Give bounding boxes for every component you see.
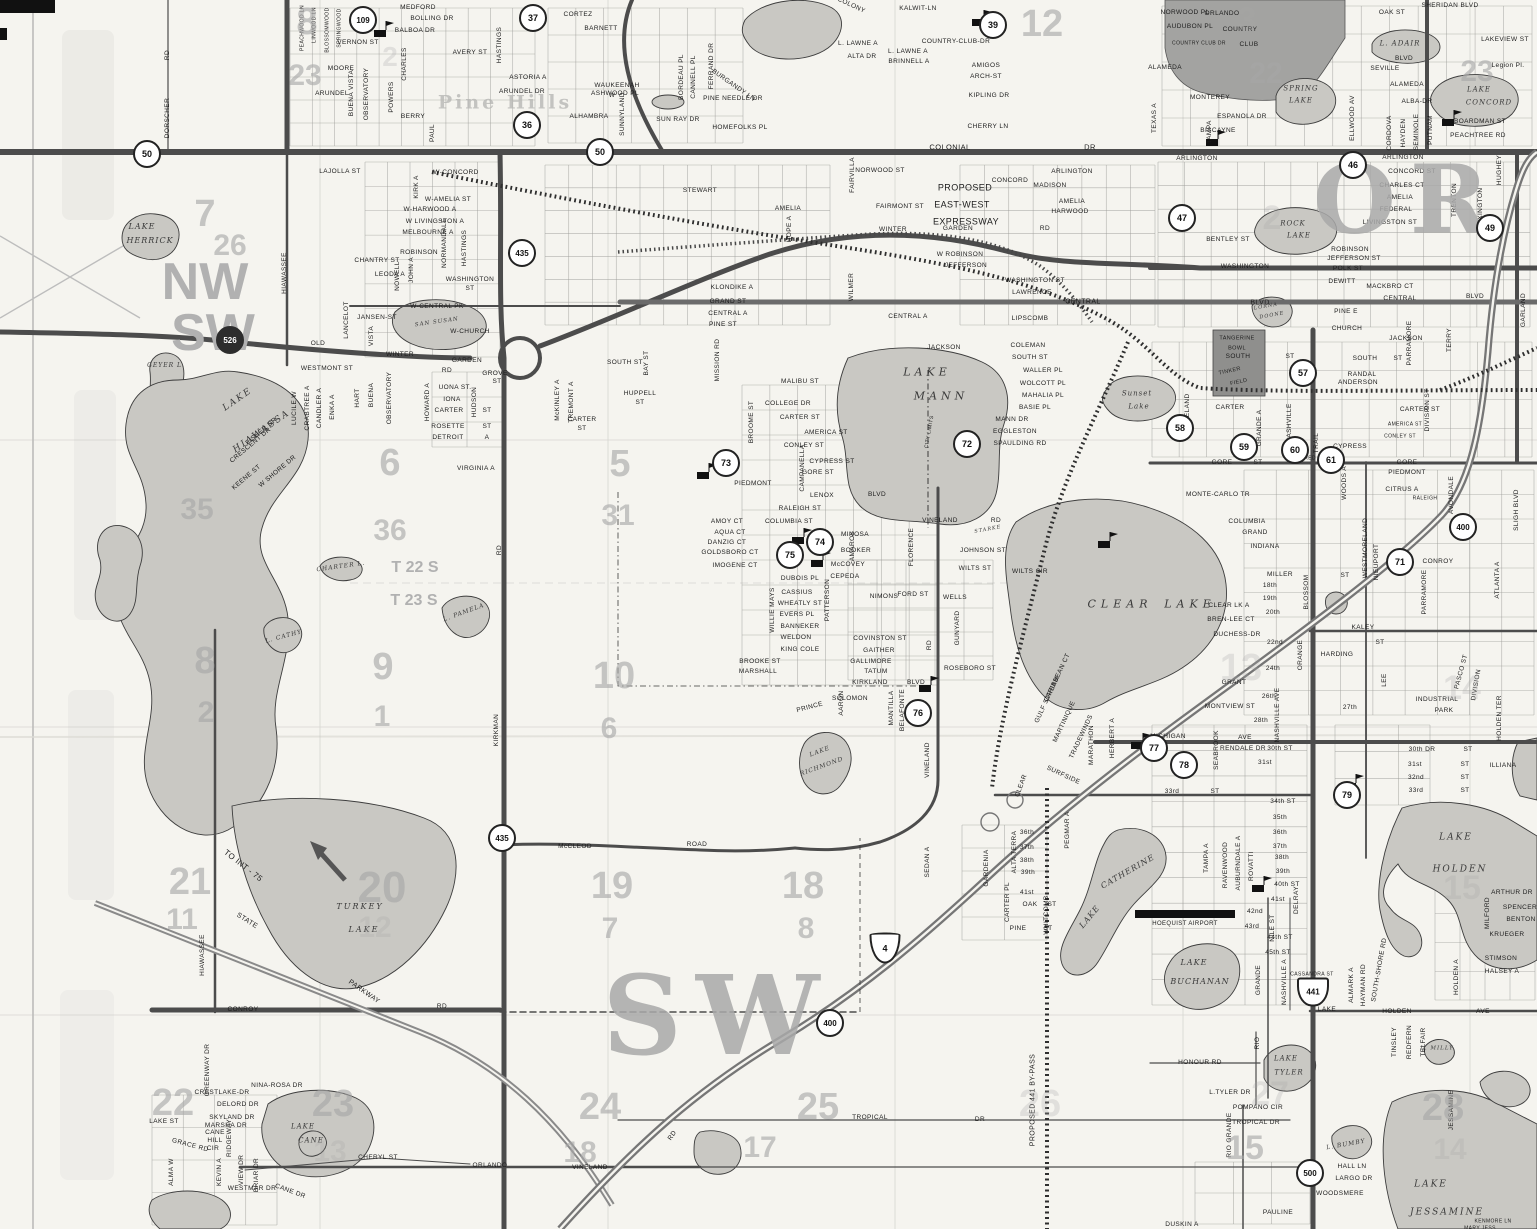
street-label: BENTLEY ST — [1206, 237, 1250, 244]
lake-label: Sunset — [1122, 391, 1152, 398]
street-label: WOLCOTT PL — [1020, 381, 1066, 388]
street-label: TATUM — [864, 669, 887, 676]
street-label: KALEY — [1352, 625, 1375, 632]
us-route-shield: 441 — [1297, 978, 1329, 1007]
state-route-shield: 435 — [488, 824, 516, 852]
street-label: A — [485, 435, 490, 442]
street-label: KING COLE — [781, 647, 820, 654]
street-label: LAWRENCE — [1012, 290, 1052, 297]
street-label: OBSERVATORY — [387, 372, 394, 425]
street-label: AVE — [1476, 1009, 1490, 1016]
street-label: EVERS PL — [780, 612, 815, 619]
street-label: DELRAY — [1294, 886, 1301, 914]
street-label: BERRY — [401, 114, 425, 121]
street-label: WASHINGTON — [446, 277, 494, 284]
street-label: ARCH-ST — [970, 74, 1002, 81]
street-label: JEFFERSON — [945, 263, 987, 270]
street-label: ST — [1375, 640, 1384, 647]
section-number: 12 — [358, 913, 391, 943]
street-label: MILLER — [1267, 572, 1293, 579]
street-label: PUTNAM — [1428, 115, 1435, 145]
street-label: KEENE ST — [231, 464, 262, 492]
street-label: WESTMAR DR — [228, 1186, 276, 1193]
street-label: BANNEKER — [781, 624, 820, 631]
section-number: 22 — [1249, 59, 1282, 89]
street-label: CANE DR — [274, 1183, 306, 1200]
street-label: ALMA W — [169, 1158, 176, 1186]
street-label: GORE — [1212, 460, 1233, 467]
street-label: GARLAND — [1521, 293, 1528, 327]
state-route-shield: 75 — [776, 541, 804, 569]
street-label: KRUEGER — [1490, 932, 1525, 939]
street-label: RD — [437, 1004, 447, 1011]
street-label: LAKEVIEW ST — [1481, 37, 1529, 44]
street-label: WESTMORELAND — [1363, 518, 1370, 578]
lake-label: SPRING — [1283, 86, 1318, 93]
state-route-shield: 109 — [349, 6, 377, 34]
street-label: BASIE PL — [1019, 405, 1051, 412]
lake-label: LAKE — [1289, 98, 1313, 105]
street-label: RALEIGH ST — [779, 506, 822, 513]
street-label: ARTHUR DR — [1491, 890, 1533, 897]
street-label: BROOKE ST — [739, 659, 781, 666]
street-label: COUNTRY CLUB DR — [1172, 42, 1226, 47]
street-label: STIMSON — [1485, 956, 1517, 963]
street-label: BLVD — [868, 492, 886, 499]
street-label: 37th — [1020, 845, 1034, 852]
street-label: DORSCHER — [165, 98, 172, 138]
street-label: SEVILLE — [1370, 66, 1399, 73]
street-label: MILFORD — [1485, 897, 1492, 929]
street-label: PARK — [1435, 708, 1454, 715]
street-label: WILTS CIR — [1012, 569, 1048, 576]
street-label: CANE — [205, 1130, 225, 1137]
lake-label: CONCORD — [1466, 100, 1512, 107]
street-label: AVE — [1238, 735, 1252, 742]
street-label: AQUA CT — [714, 530, 745, 537]
section-number: 25 — [797, 1088, 839, 1126]
street-label: REDFERN — [1407, 1025, 1414, 1059]
section-number: 14 — [1443, 671, 1481, 705]
street-label: W SHORE DR — [258, 455, 298, 490]
street-label: PARRAMORE — [1422, 569, 1429, 614]
lake-label: CHARTER L. — [316, 561, 366, 574]
street-label: W-CENTRAL PK — [410, 304, 464, 311]
street-label: VINELAND — [922, 518, 958, 525]
street-label: PIEDMONT — [734, 481, 772, 488]
street-label: PATTERSON — [825, 579, 832, 621]
state-route-shield: 79 — [1333, 781, 1361, 809]
section-number: 9 — [372, 648, 393, 686]
lake-label: HERRICK — [126, 237, 173, 245]
street-label: PRINCE — [796, 701, 824, 714]
street-label: PARRAMORE — [1407, 320, 1414, 365]
street-label: HAYDEN — [1401, 118, 1408, 147]
street-label: 39th — [1276, 869, 1290, 876]
street-label: ROSETTE — [431, 424, 465, 431]
street-label: GUNYARD — [955, 611, 962, 646]
street-label: ALTA TERRA — [1012, 831, 1019, 874]
street-label: BROOME ST — [749, 401, 756, 444]
street-label: ST — [1463, 747, 1472, 754]
street-label: ASHWOOD PL — [591, 91, 639, 98]
street-label: ST — [1285, 354, 1294, 361]
street-label: AUBURNDALE A — [1236, 835, 1243, 890]
street-label: PROPOSED — [938, 184, 992, 193]
street-label: SURFSIDE — [1045, 765, 1080, 786]
state-route-shield: 49 — [1476, 214, 1504, 242]
street-label: KIRK A — [414, 175, 421, 198]
street-label: PEACHTREE RD — [1450, 133, 1506, 140]
street-label: MALIBU ST — [781, 379, 819, 386]
street-label: CITY LIMITS — [925, 415, 936, 449]
street-label: W LIVINGSTON A — [406, 219, 465, 226]
street-label: ST — [1460, 788, 1469, 795]
street-label: BUENA VISTA — [349, 70, 356, 117]
street-label: 35th — [1273, 815, 1287, 822]
state-route-shield: 57 — [1289, 359, 1317, 387]
street-label: TAMPA A — [1204, 843, 1211, 873]
street-label: HONOUR RD — [1178, 1060, 1222, 1067]
street-label: HIAWASSEE — [282, 252, 289, 294]
street-label: MACKBRO CT — [1366, 284, 1413, 291]
section-number: 8 — [296, 3, 317, 41]
region-label: NW — [162, 256, 249, 308]
street-label: 41st — [1020, 890, 1034, 897]
section-number: 6 — [379, 444, 400, 482]
street-label: 20th — [1266, 610, 1280, 617]
section-number: 36 — [373, 516, 406, 546]
street-label: CANNELL PL — [691, 55, 698, 99]
street-label: PINE — [1010, 926, 1027, 933]
street-label: RD — [497, 545, 504, 555]
state-route-shield: 74 — [806, 528, 834, 556]
street-label: BALBOA DR — [395, 28, 435, 35]
state-route-shield: 50 — [586, 138, 614, 166]
lake-label: L. MILLY — [1420, 1046, 1454, 1052]
street-label: ARLINGTON — [1176, 156, 1217, 163]
section-number: 26 — [1019, 1085, 1061, 1123]
street-label: NIMONS — [870, 594, 898, 601]
street-label: ST — [635, 400, 644, 407]
street-label: BORDEAU PL — [679, 54, 686, 100]
street-label: HOLDEN A — [1454, 959, 1461, 995]
street-label: MANN DR — [995, 417, 1028, 424]
street-label: VIRGINIA A — [457, 466, 495, 473]
street-label: CLEAR — [1015, 774, 1029, 798]
street-label: SOUTH ST — [607, 360, 643, 367]
street-label: ORLANDO — [1205, 11, 1240, 18]
street-label: NINA-ROSA DR — [251, 1083, 303, 1090]
street-label: HARDING — [1321, 652, 1354, 659]
map-canvas: DORSCHERRDPEACHWOOD LNLINWOOD LNBLOSSOMW… — [0, 0, 1537, 1229]
street-label: HOPE A — [787, 216, 794, 243]
street-label: 33rd — [1409, 788, 1424, 795]
street-label: WAUKEENAH — [594, 83, 639, 90]
street-label: 31st — [1408, 762, 1422, 769]
lake-label: LAKE — [1439, 834, 1473, 843]
street-label: DUCHESS-DR — [1213, 632, 1260, 639]
lake-label: LAKE — [1414, 1181, 1448, 1190]
street-label: 28th — [1254, 718, 1268, 725]
street-label: LUCILE W — [292, 391, 299, 425]
street-label: CHERRY LN — [968, 124, 1009, 131]
section-number: 6 — [601, 714, 618, 744]
street-label: BUENA — [369, 383, 376, 407]
street-label: ST — [1047, 902, 1056, 909]
section-number: 23 — [312, 1085, 354, 1123]
street-label: KIPLING DR — [969, 93, 1010, 100]
section-number: 22 — [152, 1084, 194, 1122]
section-number: 3 — [1238, 3, 1257, 37]
street-label: HUDSON — [472, 387, 479, 418]
section-number: 18 — [782, 867, 824, 905]
section-number: 8 — [194, 642, 215, 680]
street-label: KIRKMAN — [494, 714, 501, 746]
street-label: TROPICAL DR — [1232, 1120, 1280, 1127]
street-label: FAIRVILLA — [850, 157, 857, 193]
region-label: T 23 S — [390, 593, 437, 609]
street-label: LANCELOT — [344, 301, 351, 339]
street-label: POWERS — [389, 81, 396, 112]
street-label: CANDLER A — [317, 388, 324, 428]
section-number: 20 — [358, 866, 407, 910]
street-label: DELORD DR — [217, 1102, 259, 1109]
street-label: ROSEBORO ST — [944, 666, 996, 673]
state-route-shield: 77 — [1140, 734, 1168, 762]
street-label: 18th — [1263, 583, 1277, 590]
street-label: NORWOOD PL — [1160, 10, 1209, 17]
street-label: KEVIN A — [217, 1158, 224, 1186]
street-label: WOODS A — [1342, 466, 1349, 500]
street-label: OLD — [311, 341, 326, 348]
street-label: HALSEY A — [1485, 969, 1520, 976]
state-route-shield: 526 — [216, 326, 244, 354]
street-label: TROPICAL — [852, 1115, 888, 1122]
street-label: OAK — [1023, 902, 1038, 909]
street-label: STATE — [235, 912, 259, 930]
street-label: ROAD — [687, 842, 707, 849]
street-label: MARTINIQUE — [1053, 700, 1078, 743]
street-label: COLEMAN — [1011, 343, 1046, 350]
street-label: COLONIAL — [929, 143, 970, 151]
street-label: RALEIGH — [1413, 497, 1438, 502]
street-label: AMELIA — [775, 206, 801, 213]
street-label: AMERICA ST — [1388, 423, 1422, 428]
street-label: EAST-WEST — [934, 201, 990, 210]
street-label: CLUB — [1240, 42, 1259, 49]
lake-label: L. ADAIR — [1380, 41, 1421, 48]
lake-label: L. PAMELA — [443, 603, 486, 624]
street-label: HILL — [207, 1138, 222, 1145]
street-label: IONA — [443, 397, 461, 404]
street-label: WELDON — [781, 635, 812, 642]
street-label: BAY ST — [644, 351, 651, 376]
street-label: POLK ST — [1333, 266, 1363, 273]
street-label: FAIRMONT ST — [876, 204, 924, 211]
street-label: CASSIUS — [781, 590, 812, 597]
street-label: HASTINGS — [462, 230, 469, 266]
street-label: HASTINGS — [497, 27, 504, 63]
state-route-shield: 47 — [1168, 204, 1196, 232]
section-number: 2 — [1263, 201, 1282, 235]
region-label: Pine Hills — [438, 94, 572, 113]
street-label: WALLER PL — [1023, 368, 1063, 375]
section-number: 13 — [1220, 649, 1262, 687]
street-label: BLVD — [1395, 56, 1413, 63]
street-label: W-CONCORD — [433, 170, 478, 177]
street-label: ATLANTA A — [1495, 561, 1502, 598]
section-number: 15 — [1443, 871, 1481, 905]
street-label: MONTVIEW ST — [1205, 704, 1255, 711]
street-label: HOMEFOLKS PL — [712, 125, 767, 132]
section-number: 14 — [1433, 1135, 1466, 1165]
street-label: RD — [667, 1130, 678, 1142]
street-label: L. LAWNE A — [888, 49, 928, 56]
street-label: VISTA — [369, 326, 376, 346]
lake-label: JESSAMINE — [1410, 1209, 1484, 1218]
street-label: SUN RAY DR — [656, 117, 700, 124]
street-label: JOHN A — [409, 257, 416, 283]
street-label: ALAMEDA — [1148, 65, 1182, 72]
street-label: WILTS ST — [959, 566, 992, 573]
section-number: 5 — [609, 445, 630, 483]
state-route-shield: 435 — [508, 239, 536, 267]
section-number: 23 — [288, 61, 321, 91]
street-label: NASHVILLE A — [1282, 959, 1289, 1005]
state-route-shield: 71 — [1386, 548, 1414, 576]
street-label: CHARLES — [402, 47, 409, 81]
street-label: BREN-LEE CT — [1207, 617, 1254, 624]
street-label: ILLIANA — [1489, 763, 1516, 770]
street-label: COLONY — [836, 0, 866, 15]
section-number: 8 — [798, 914, 815, 944]
street-label: GROVE — [482, 371, 507, 378]
street-label: PIEDMONT — [1388, 470, 1426, 477]
section-number: 2 — [198, 698, 215, 728]
lake-label: STARKE — [974, 525, 1002, 535]
street-label: GALLIMORE — [850, 659, 892, 666]
street-label: WOODSMERE — [1316, 1191, 1364, 1198]
street-label: AMERICA ST — [804, 430, 847, 437]
street-label: SOUTH ST — [1012, 355, 1048, 362]
street-label: McKINLEY A — [555, 379, 562, 420]
street-label: ESPANOLA DR — [1217, 114, 1267, 121]
street-label: TEXAS A — [1152, 103, 1159, 133]
street-label: BOLLING DR — [410, 16, 453, 23]
street-label: BOWL — [1228, 346, 1246, 352]
street-label: JEFFERSON ST — [1327, 256, 1381, 263]
lake-label: Lake — [1128, 404, 1149, 411]
street-label: AMAROS — [850, 531, 857, 562]
street-label: OAK ST — [1379, 10, 1405, 17]
section-number: 11 — [166, 905, 198, 935]
street-label: DUSKIN A — [1165, 1222, 1199, 1229]
street-label: PINE NEEDLE DR — [703, 96, 763, 103]
section-number: 7 — [602, 914, 619, 944]
street-label: ST — [1253, 460, 1262, 467]
street-label: CARTER — [434, 408, 463, 415]
street-label: SPENCER — [1503, 905, 1537, 912]
street-label: ORANGE — [1298, 640, 1305, 671]
lake-label: LAKE — [1274, 1056, 1298, 1063]
section-number: 24 — [579, 1088, 621, 1126]
street-label: AUDUBON PL — [1167, 24, 1213, 31]
lake-label: LAKE — [809, 746, 831, 759]
street-label: BLOSSOMWOOD — [326, 7, 331, 52]
street-label: ORLANDO — [473, 1163, 508, 1170]
region-label: T 22 S — [391, 560, 438, 576]
lake-label: L. CATHY — [265, 629, 303, 645]
lake-label: LAKE — [1078, 904, 1101, 930]
street-label: 39th — [1021, 870, 1035, 877]
street-label: BLVD — [1466, 294, 1484, 301]
street-label: WINTER — [386, 352, 414, 359]
street-label: CENTRAL A — [708, 311, 747, 318]
street-label: ST — [482, 424, 491, 431]
street-label: HALL LN — [1338, 1164, 1367, 1171]
street-label: RD — [165, 50, 172, 60]
section-number: 23 — [1460, 57, 1493, 87]
street-label: ST — [465, 286, 474, 293]
street-label: LEE — [1382, 673, 1389, 687]
street-label: BARNETT — [584, 26, 617, 33]
street-label: RAVENWOOD — [1223, 842, 1230, 888]
street-label: MAHALIA PL — [1022, 393, 1064, 400]
street-label: CONCORD — [992, 178, 1028, 185]
state-route-shield: 72 — [953, 430, 981, 458]
street-label: MARSHA DR — [205, 1123, 247, 1130]
street-label: HART — [355, 388, 362, 407]
street-label: RD — [1040, 226, 1050, 233]
street-label: CARTER PL — [1005, 882, 1012, 922]
street-label: 22nd — [1267, 640, 1283, 647]
state-route-shield: 36 — [513, 111, 541, 139]
section-number: 19 — [591, 867, 633, 905]
street-label: FORD ST — [897, 592, 928, 599]
street-label: LAKE — [1318, 1007, 1336, 1014]
section-number: 18 — [563, 1138, 596, 1168]
street-label: COLLEGE DR — [765, 401, 811, 408]
state-route-shield: 73 — [712, 449, 740, 477]
street-label: WHEATLY ST — [778, 601, 822, 608]
street-label: GARDEN — [943, 226, 973, 233]
street-label: JANSEN-ST — [357, 315, 397, 322]
section-number: 7 — [194, 195, 215, 233]
street-label: GORE — [1397, 460, 1418, 467]
street-label: McCLEOD — [558, 844, 592, 851]
street-label: SOUTH — [1353, 356, 1378, 363]
street-label: 37th — [1273, 844, 1287, 851]
street-label: ARLINGTON — [1051, 169, 1092, 176]
street-label: LARGO DR — [1335, 1176, 1372, 1183]
street-label: 43rd — [1245, 924, 1260, 931]
street-label: ST — [482, 408, 491, 415]
street-label: MEDFORD — [400, 5, 436, 12]
section-number: 10 — [593, 657, 635, 695]
street-label: RANDAL — [1348, 372, 1377, 379]
street-label: CHERYL ST — [358, 1155, 398, 1162]
street-label: CARTER — [1215, 405, 1244, 412]
street-label: IMOGENE CT — [712, 563, 757, 570]
street-label: MANTILLA — [889, 691, 896, 726]
street-label: GRAND — [1242, 530, 1267, 537]
street-label: CRABTREE A — [305, 385, 312, 430]
street-label: TANGERINE — [1219, 336, 1254, 342]
street-label: CENTRAL — [1383, 296, 1416, 303]
street-label: GULF STREAM — [1034, 676, 1061, 725]
street-label: L.TYLER DR — [1209, 1090, 1251, 1097]
